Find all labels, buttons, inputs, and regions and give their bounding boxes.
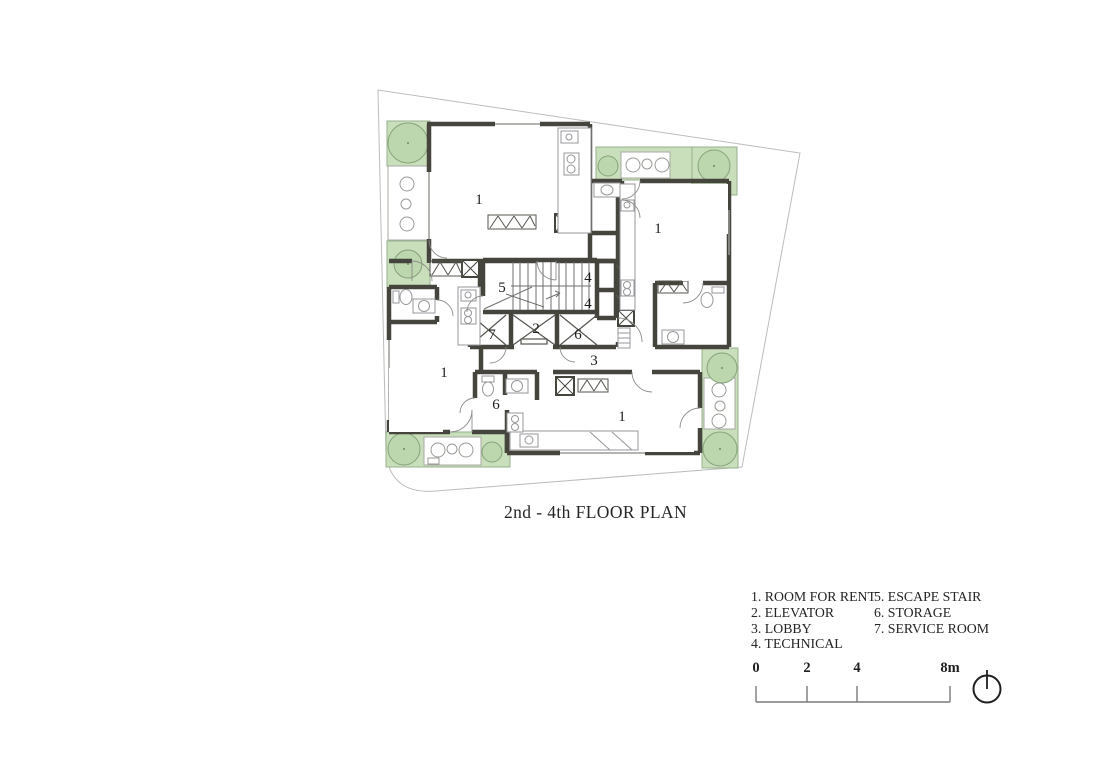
sofa-tl [492, 129, 536, 142]
scale-bar: 0 2 4 8m [746, 656, 976, 713]
room-label-tl: 1 [475, 192, 483, 208]
stair-label-leader [506, 294, 544, 307]
dining-set-tr [663, 238, 715, 281]
dining-set-tl [495, 152, 547, 195]
scale-tick-2: 2 [803, 660, 810, 676]
storage-unit-label: 6 [492, 397, 500, 413]
legend-item: 6. STORAGE [874, 605, 989, 621]
bed-bottom-right [640, 398, 694, 452]
technical-lower-label: 4 [584, 296, 592, 312]
desk-bl [452, 382, 468, 394]
bed-bottom-left [389, 368, 443, 432]
room-label-br: 1 [618, 409, 626, 425]
chair-br [612, 384, 625, 397]
north-arrow-icon [969, 668, 1005, 711]
legend-item: 1. ROOM FOR RENT [751, 589, 874, 605]
service-room-label: 7 [488, 327, 496, 343]
duct-shafts [462, 214, 634, 395]
technical-upper-label: 4 [584, 270, 592, 286]
plan-title: 2nd - 4th FLOOR PLAN [504, 502, 687, 523]
legend-item: 3. LOBBY [751, 621, 874, 637]
bed-top-right [672, 184, 728, 234]
room-label-bl: 1 [440, 365, 448, 381]
legend-column-2: 5. ESCAPE STAIR 6. STORAGE 7. SERVICE RO… [874, 589, 989, 652]
legend: 1. ROOM FOR RENT 2. ELEVATOR 3. LOBBY 4.… [751, 589, 989, 652]
lobby-label: 3 [590, 353, 598, 369]
legend-item: 5. ESCAPE STAIR [874, 589, 989, 605]
legend-item: 7. SERVICE ROOM [874, 621, 989, 637]
scale-bar-drawing: 0 2 4 8m [746, 656, 976, 708]
floor-plan-page: 1 1 1 1 5 4 4 2 7 6 3 6 2nd - 4th FLOOR … [0, 0, 1100, 777]
legend-item: 4. TECHNICAL [751, 636, 874, 652]
scale-bar-ruler [756, 686, 950, 702]
desk-tl [434, 206, 449, 219]
scale-tick-0: 0 [752, 660, 759, 676]
storage-core-label: 6 [574, 327, 582, 343]
legend-item: 2. ELEVATOR [751, 605, 874, 621]
scale-tick-4: 4 [853, 660, 860, 676]
escape-stair-label: 5 [498, 280, 506, 296]
legend-column-1: 1. ROOM FOR RENT 2. ELEVATOR 3. LOBBY 4.… [751, 589, 874, 652]
room-label-tr: 1 [654, 221, 662, 237]
bed-top-left [435, 130, 483, 182]
elevator-label: 2 [532, 321, 540, 337]
scale-tick-8m: 8m [940, 660, 959, 676]
